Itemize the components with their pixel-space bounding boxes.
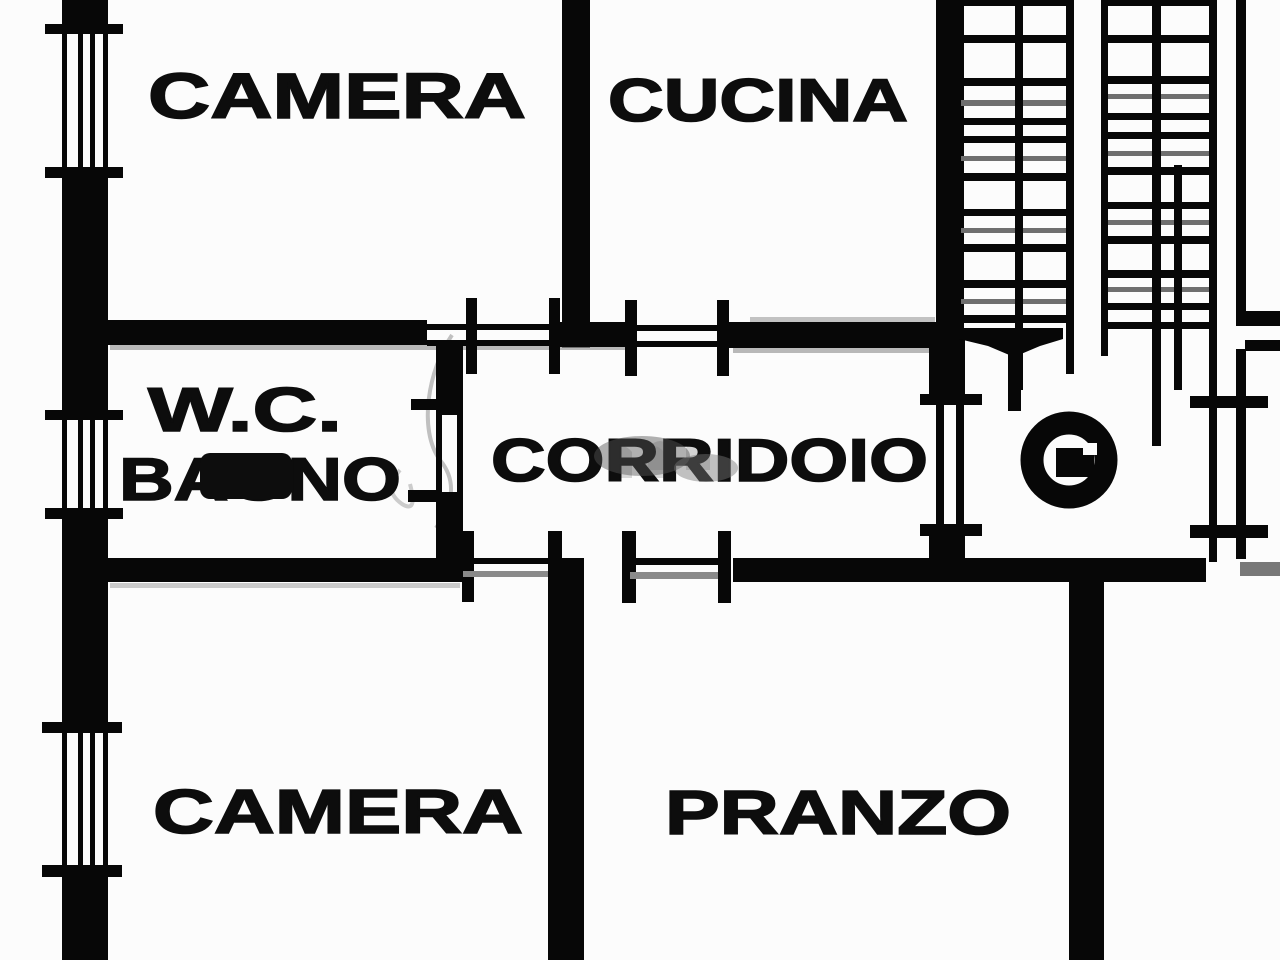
svg-text:W.C.: W.C.	[148, 376, 342, 445]
svg-text:CUCINA: CUCINA	[608, 67, 908, 134]
svg-text:CAMERA: CAMERA	[148, 60, 526, 132]
svg-text:PRANZO: PRANZO	[665, 779, 1011, 848]
svg-text:CAMERA: CAMERA	[153, 778, 523, 847]
